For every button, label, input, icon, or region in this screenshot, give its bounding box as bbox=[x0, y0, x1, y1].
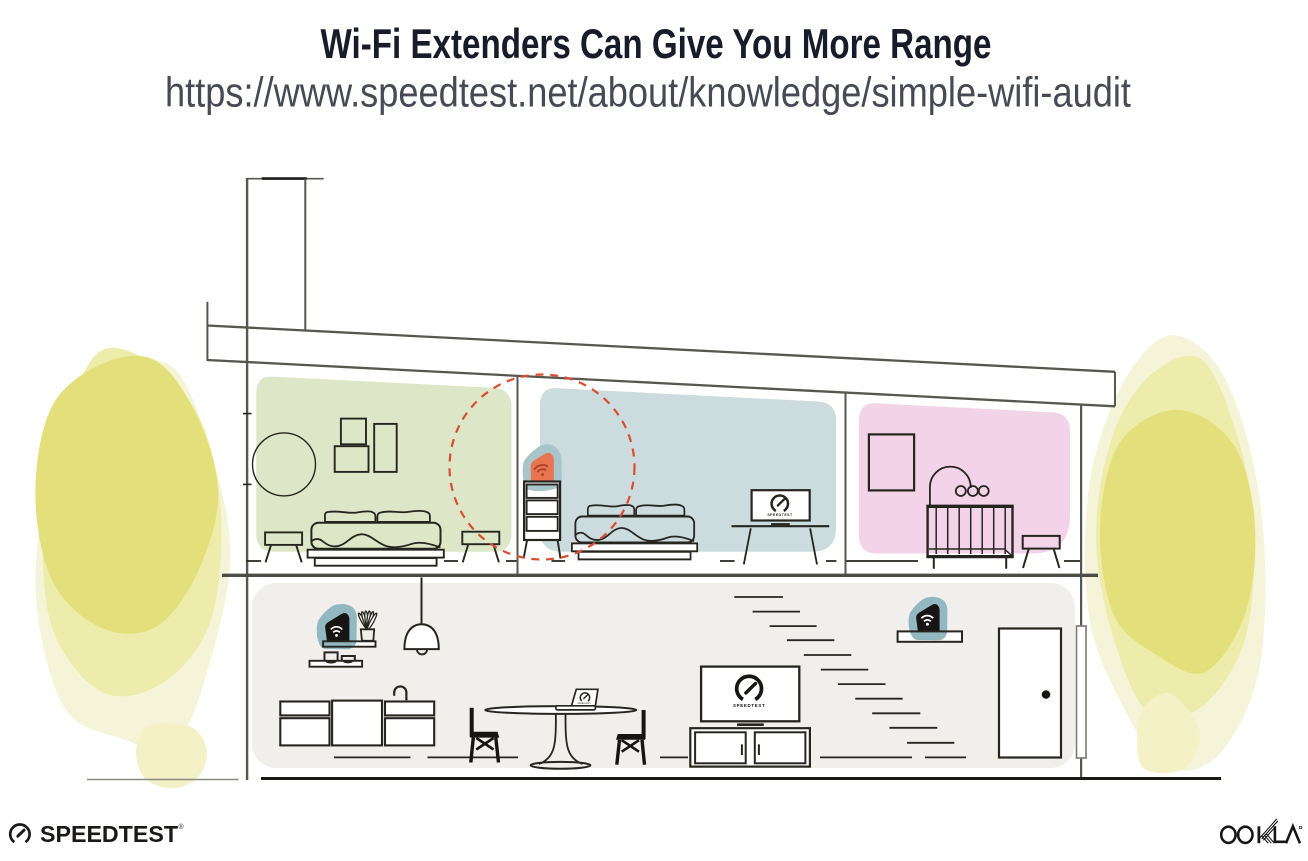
svg-text:SPEEDTEST: SPEEDTEST bbox=[40, 821, 179, 847]
svg-text:®: ® bbox=[179, 823, 185, 831]
svg-text:Wi-Fi Extenders Can Give You M: Wi-Fi Extenders Can Give You More Range bbox=[321, 20, 992, 67]
svg-text:SPEEDTEST: SPEEDTEST bbox=[733, 703, 765, 708]
svg-text:https://www.speedtest.net/abou: https://www.speedtest.net/about/knowledg… bbox=[165, 69, 1131, 116]
svg-text:SPEEDTEST: SPEEDTEST bbox=[578, 703, 592, 705]
svg-text:SPEEDTEST: SPEEDTEST bbox=[767, 513, 793, 517]
